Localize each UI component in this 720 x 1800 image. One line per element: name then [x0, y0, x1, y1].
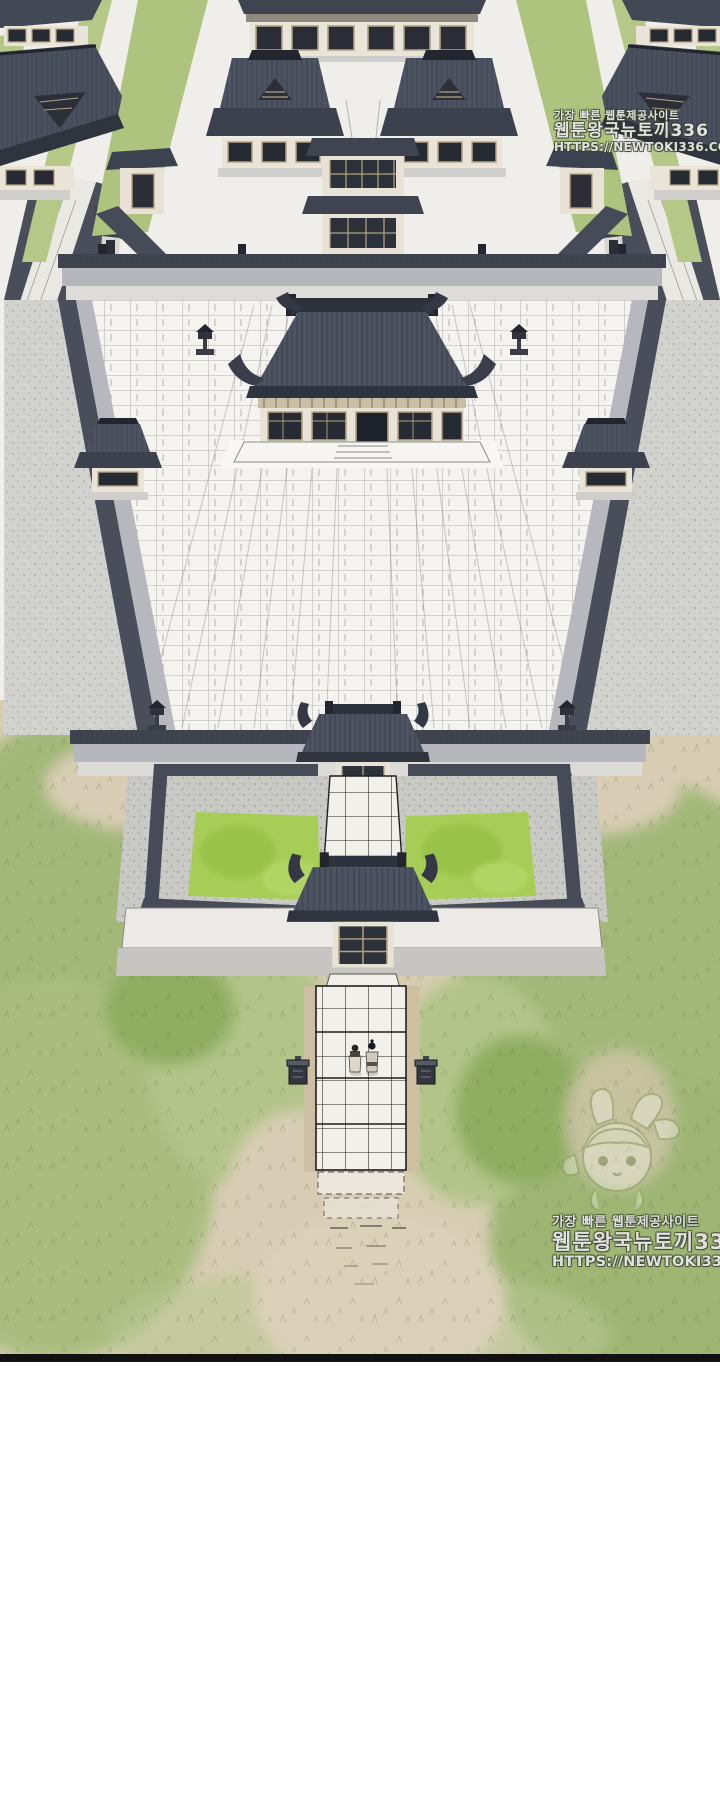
comic-panel: 가장 빠른 웹툰제공사이트 웹툰왕국뉴토끼336 HTTPS://NEWTOKI…: [0, 0, 720, 1362]
watermark-bottom-url: HTTPS://NEWTOKI336.COM: [552, 1254, 720, 1270]
webtoon-page: { "panel": { "alt": "Bird's-eye ink illu…: [0, 0, 720, 1800]
watermark-bottom-line1: 가장 빠른 웹툰제공사이트: [552, 1216, 720, 1231]
walkway: [324, 776, 402, 862]
watermark-top: 가장 빠른 웹툰제공사이트 웹툰왕국뉴토끼336 HTTPS://NEWTOKI…: [554, 110, 720, 155]
watermark-bottom-line2: 웹툰왕국뉴토끼336: [552, 1231, 720, 1255]
watermark-bottom: 가장 빠른 웹툰제공사이트 웹툰왕국뉴토끼336 HTTPS://NEWTOKI…: [552, 1216, 720, 1270]
stone-pedestal: [415, 1056, 437, 1084]
watermark-top-url: HTTPS://NEWTOKI336.COM: [554, 141, 720, 154]
stone-pedestal: [287, 1056, 309, 1084]
page-bottom-whitespace: [0, 1362, 720, 1800]
bunny-girl-mascot-icon: [535, 1085, 695, 1220]
watermark-top-line2: 웹툰왕국뉴토끼336: [554, 122, 720, 141]
